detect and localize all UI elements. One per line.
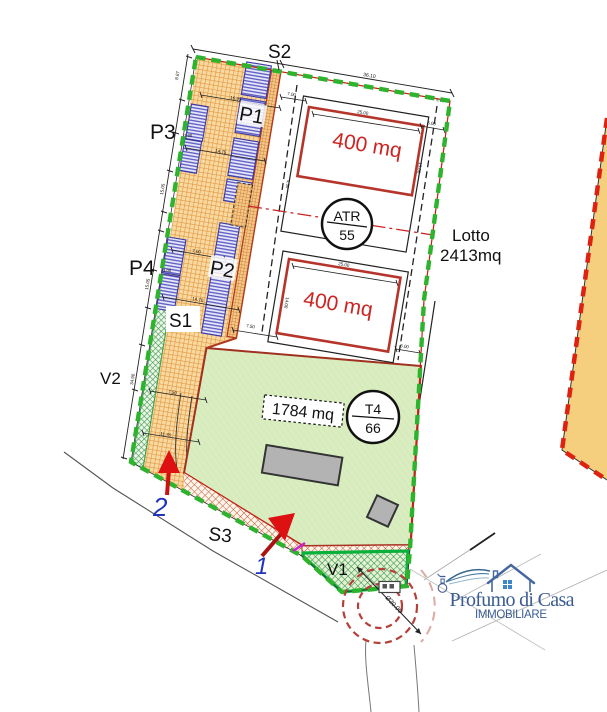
svg-text:P2: P2 — [208, 257, 236, 283]
svg-text:S1: S1 — [169, 311, 192, 332]
svg-text:V2: V2 — [100, 369, 121, 388]
svg-text:P3: P3 — [150, 121, 176, 144]
svg-text:P1: P1 — [237, 103, 265, 129]
svg-text:1: 1 — [255, 553, 268, 580]
svg-text:Profumo di Casa: Profumo di Casa — [450, 589, 575, 611]
svg-text:Lotto: Lotto — [452, 226, 490, 245]
svg-text:T4: T4 — [365, 401, 382, 417]
svg-text:66: 66 — [365, 420, 381, 436]
svg-text:ATR: ATR — [334, 208, 361, 224]
svg-text:3.00: 3.00 — [163, 268, 172, 273]
svg-text:55: 55 — [339, 227, 355, 243]
svg-text:S3: S3 — [207, 524, 232, 547]
svg-text:2: 2 — [152, 492, 168, 522]
svg-text:IMMOBILIARE: IMMOBILIARE — [475, 609, 549, 621]
svg-text:2413mq: 2413mq — [440, 246, 501, 265]
svg-text:V1: V1 — [327, 560, 348, 579]
svg-text:S2: S2 — [268, 42, 291, 63]
svg-text:P4: P4 — [129, 257, 155, 280]
